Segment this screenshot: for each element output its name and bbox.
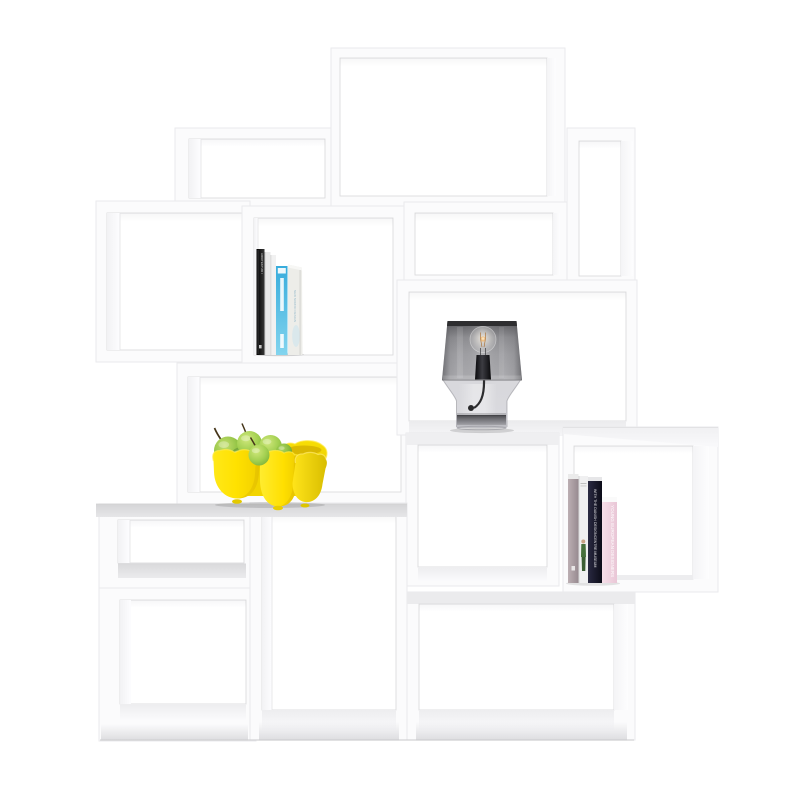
- svg-text:WITH THE DANISH DESIGNCENTRE M: WITH THE DANISH DESIGNCENTRE MUSEUM: [593, 489, 597, 567]
- svg-text:ARKITEKTUR I: ARKITEKTUR I: [260, 253, 264, 274]
- svg-text:YOUNG EUROPEAN DESIGNERS: YOUNG EUROPEAN DESIGNERS: [610, 505, 615, 577]
- svg-text:NEW NORDIC DESIGN: NEW NORDIC DESIGN: [293, 290, 297, 322]
